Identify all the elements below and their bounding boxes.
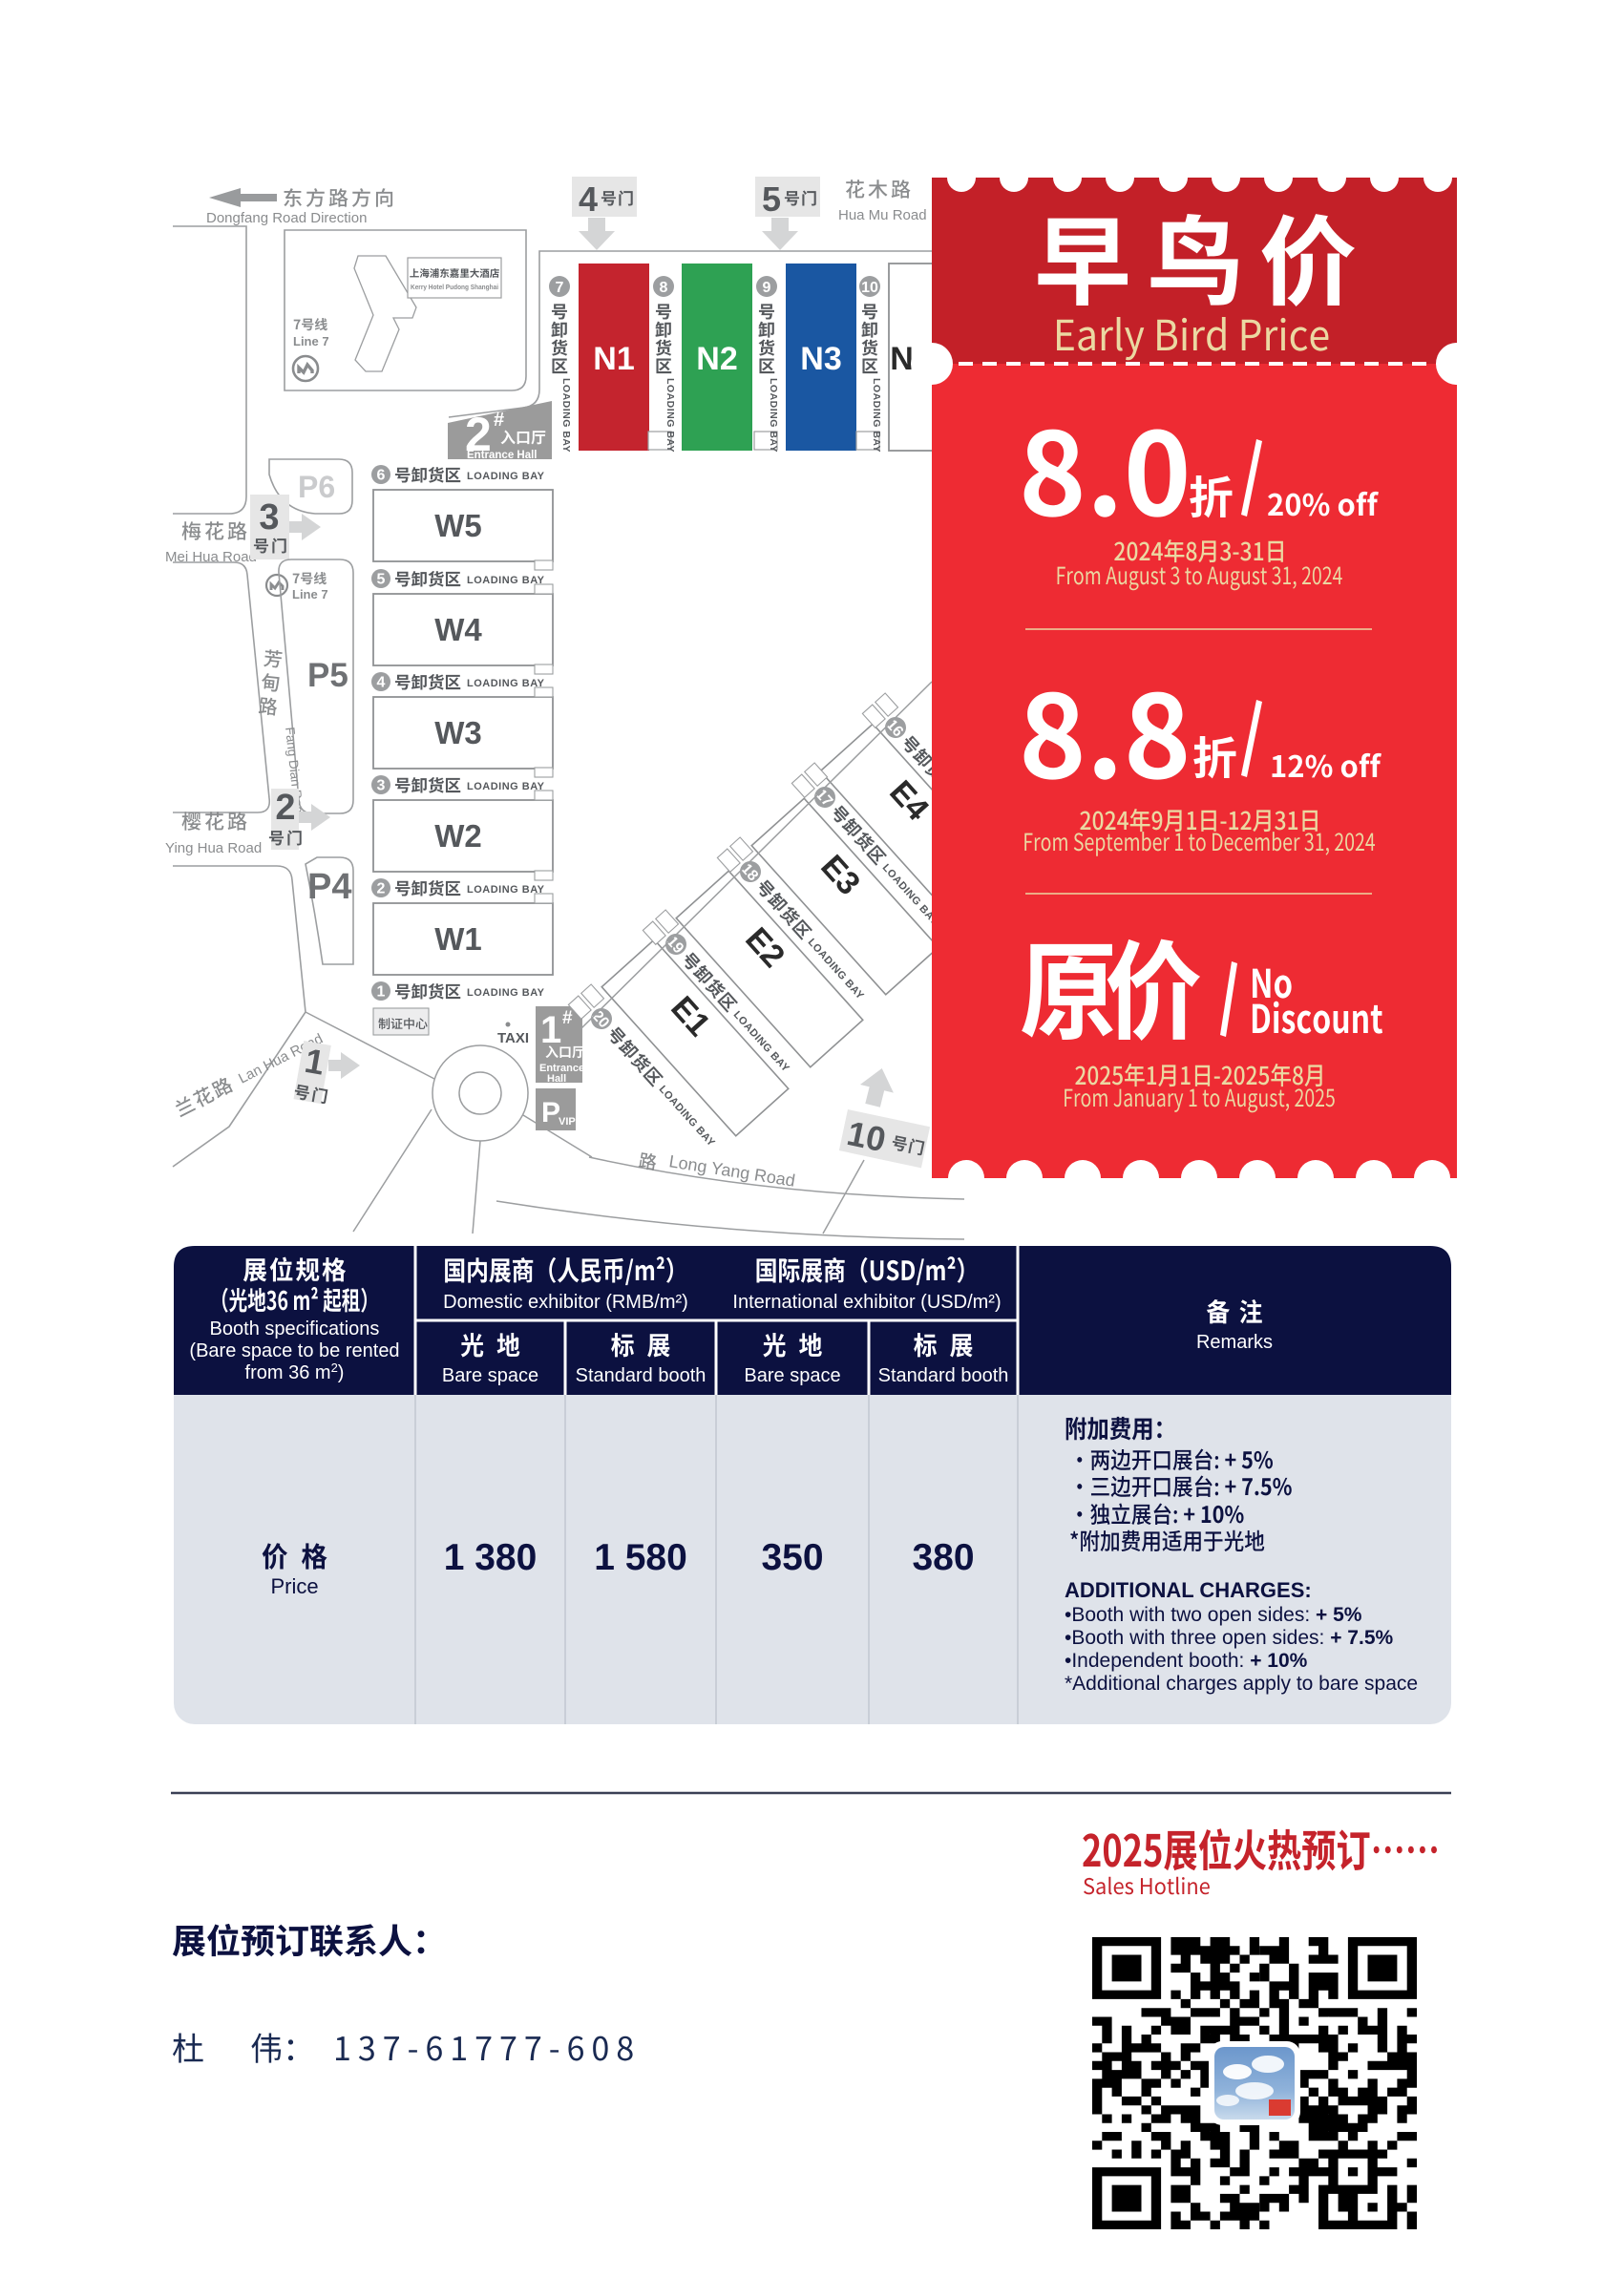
svg-text:Bare space: Bare space — [744, 1365, 840, 1386]
svg-text:Line 7: Line 7 — [292, 587, 328, 601]
svg-text:•Independent booth: + 10%: •Independent booth: + 10% — [1065, 1650, 1308, 1672]
svg-text:1: 1 — [540, 1009, 561, 1051]
svg-text:Line 7: Line 7 — [293, 334, 329, 348]
svg-text:Kerry Hotel Pudong Shanghai: Kerry Hotel Pudong Shanghai — [411, 283, 498, 291]
svg-text:VIP: VIP — [559, 1116, 576, 1128]
svg-text:10: 10 — [844, 1113, 890, 1159]
svg-text:W2: W2 — [434, 818, 482, 854]
svg-text:8: 8 — [660, 280, 668, 296]
svg-text:4: 4 — [579, 179, 598, 219]
svg-text:5: 5 — [377, 572, 386, 588]
svg-text:Entrance Hall: Entrance Hall — [467, 450, 538, 461]
svg-text:Hall: Hall — [547, 1073, 566, 1085]
svg-text:N2: N2 — [696, 341, 737, 377]
svg-text:3: 3 — [377, 778, 386, 794]
svg-text:2: 2 — [377, 881, 386, 897]
svg-text:P: P — [541, 1097, 560, 1128]
svg-text:3: 3 — [259, 497, 279, 538]
svg-text:2: 2 — [275, 788, 295, 828]
svg-text:LOADING BAY: LOADING BAY — [560, 378, 572, 453]
svg-text:P6: P6 — [298, 470, 335, 504]
svg-text:•Booth with three open sides:: •Booth with three open sides: + 7.5% — [1065, 1627, 1393, 1649]
svg-text:Standard booth: Standard booth — [878, 1365, 1009, 1386]
svg-text:International exhibitor (USD/m: International exhibitor (USD/m²) — [732, 1292, 1001, 1313]
svg-text:Domestic exhibitor (RMB/m²): Domestic exhibitor (RMB/m²) — [443, 1292, 688, 1313]
svg-text:LOADING BAY: LOADING BAY — [871, 378, 882, 453]
svg-text:LOADING BAY: LOADING BAY — [467, 781, 545, 792]
svg-text:TAXI: TAXI — [497, 1030, 529, 1046]
svg-text:Price: Price — [270, 1574, 318, 1598]
svg-text:•Booth with two open sides: +: •Booth with two open sides: + 5% — [1065, 1604, 1362, 1626]
svg-text:380: 380 — [912, 1537, 974, 1578]
svg-text:1 580: 1 580 — [594, 1537, 687, 1578]
svg-text:Ying Hua Road: Ying Hua Road — [165, 840, 262, 856]
svg-text:P5: P5 — [307, 657, 348, 694]
svg-text:5: 5 — [762, 179, 781, 219]
svg-text:#: # — [494, 410, 504, 431]
svg-text:W5: W5 — [434, 508, 482, 543]
svg-text:*Additional charges apply to b: *Additional charges apply to bare space — [1065, 1673, 1418, 1695]
svg-text:350: 350 — [761, 1537, 823, 1578]
svg-text:W4: W4 — [434, 612, 482, 647]
svg-text:P4: P4 — [307, 867, 351, 907]
svg-text:7: 7 — [556, 280, 564, 296]
svg-text:W1: W1 — [434, 921, 482, 957]
svg-text:10: 10 — [861, 280, 878, 296]
svg-text:LOADING BAY: LOADING BAY — [664, 378, 676, 453]
svg-text:ADDITIONAL CHARGES:: ADDITIONAL CHARGES: — [1065, 1578, 1312, 1602]
svg-text:1 380: 1 380 — [444, 1537, 538, 1578]
svg-text:Hua Mu Road: Hua Mu Road — [838, 207, 927, 223]
svg-text:Standard booth: Standard booth — [576, 1365, 707, 1386]
svg-text:1: 1 — [377, 984, 386, 1001]
svg-text:LOADING BAY: LOADING BAY — [467, 884, 545, 896]
svg-text:LOADING BAY: LOADING BAY — [768, 378, 779, 453]
svg-text:LOADING BAY: LOADING BAY — [467, 471, 545, 482]
svg-text:W3: W3 — [434, 715, 482, 750]
svg-text:from 36 m2): from 36 m2) — [245, 1360, 345, 1383]
svg-text:6: 6 — [377, 468, 386, 484]
svg-text:Remarks: Remarks — [1196, 1332, 1273, 1353]
svg-text:LOADING BAY: LOADING BAY — [467, 575, 545, 586]
svg-text:Dongfang Road Direction: Dongfang Road Direction — [206, 210, 367, 226]
svg-text:N3: N3 — [800, 341, 841, 377]
svg-text:Booth specifications: Booth specifications — [210, 1318, 380, 1339]
svg-text:9: 9 — [763, 280, 771, 296]
svg-text:4: 4 — [377, 675, 386, 691]
svg-text:LOADING BAY: LOADING BAY — [467, 678, 545, 689]
svg-text:N1: N1 — [593, 341, 634, 377]
svg-text:(Bare space to be rented: (Bare space to be rented — [189, 1340, 399, 1361]
svg-text:LOADING BAY: LOADING BAY — [467, 987, 545, 999]
svg-text:#: # — [562, 1008, 573, 1028]
svg-text:Bare space: Bare space — [442, 1365, 538, 1386]
